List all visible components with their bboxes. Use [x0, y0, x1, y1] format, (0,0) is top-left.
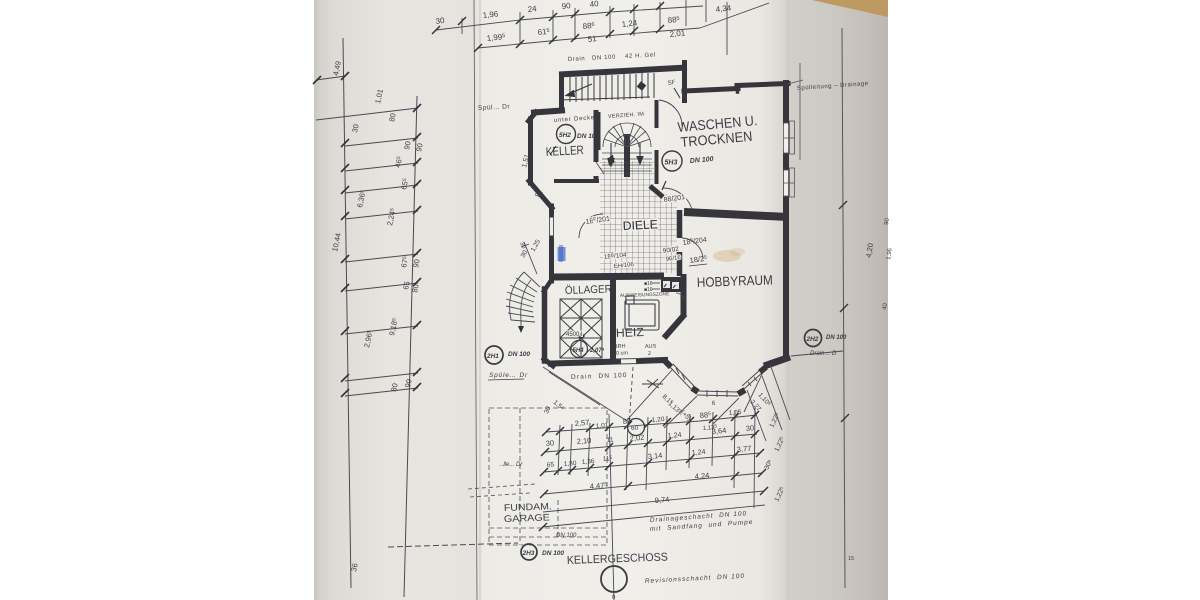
svg-text:1,24: 1,24	[692, 449, 706, 457]
svg-text:1,80: 1,80	[564, 460, 578, 468]
svg-text:GARAGE: GARAGE	[504, 512, 550, 525]
svg-text:3,64: 3,64	[711, 426, 726, 436]
svg-text:Drain… D: Drain… D	[810, 351, 837, 357]
svg-text:DN 100: DN 100	[556, 533, 577, 539]
svg-text:HOBBYRAUM: HOBBYRAUM	[697, 272, 773, 290]
svg-text:DIELE: DIELE	[622, 217, 658, 233]
svg-text:30: 30	[545, 438, 554, 448]
svg-text:5H2: 5H2	[559, 132, 571, 139]
svg-text:4500 l: 4500 l	[566, 332, 582, 338]
svg-text:3,77: 3,77	[736, 444, 751, 454]
svg-text:KELLER: KELLER	[545, 143, 584, 159]
svg-text:1,01: 1,01	[596, 422, 610, 430]
svg-text:2H2: 2H2	[806, 336, 819, 343]
svg-text:60: 60	[631, 425, 639, 432]
svg-text:DN 100: DN 100	[542, 550, 564, 557]
svg-text:4,24: 4,24	[694, 471, 709, 481]
svg-text:2,57: 2,57	[574, 418, 589, 428]
svg-text:24: 24	[527, 4, 537, 14]
svg-text:65: 65	[547, 461, 555, 469]
svg-text:90: 90	[561, 1, 571, 11]
svg-text:4,34: 4,34	[715, 3, 732, 14]
svg-text:DN 100: DN 100	[508, 351, 530, 358]
svg-text:90 cm: 90 cm	[613, 350, 629, 357]
svg-text:2,10: 2,10	[576, 436, 591, 446]
svg-text:1,24: 1,24	[668, 432, 682, 440]
svg-text:HEIZ: HEIZ	[616, 325, 644, 340]
svg-text:2H3: 2H3	[522, 550, 535, 557]
svg-text:2: 2	[648, 351, 651, 357]
svg-text:1,20: 1,20	[652, 416, 666, 424]
svg-text:DN 100: DN 100	[826, 335, 847, 341]
svg-text:1,05: 1,05	[729, 409, 743, 417]
svg-text:2,01: 2,01	[669, 28, 686, 39]
svg-text:BRH: BRH	[614, 344, 626, 350]
svg-text:9,74: 9,74	[654, 495, 669, 505]
svg-text:Spüle… Dr: Spüle… Dr	[489, 372, 528, 379]
svg-text:30: 30	[435, 16, 446, 26]
svg-text:5H3: 5H3	[665, 160, 678, 167]
svg-text:5H4: 5H4	[573, 348, 585, 354]
svg-text:1,36: 1,36	[582, 458, 596, 466]
svg-text:ÖLLAGER: ÖLLAGER	[565, 283, 612, 297]
svg-text:30: 30	[745, 423, 754, 433]
svg-text:1,96: 1,96	[482, 9, 499, 20]
svg-text:AUS: AUS	[645, 344, 657, 350]
svg-text:2H1: 2H1	[486, 353, 499, 360]
svg-text:40: 40	[589, 0, 599, 9]
svg-text:11: 11	[607, 436, 615, 444]
svg-text:3,14: 3,14	[647, 451, 662, 461]
svg-text:51: 51	[587, 34, 597, 44]
svg-text:1,24: 1,24	[621, 18, 638, 29]
svg-text:15: 15	[848, 556, 854, 562]
